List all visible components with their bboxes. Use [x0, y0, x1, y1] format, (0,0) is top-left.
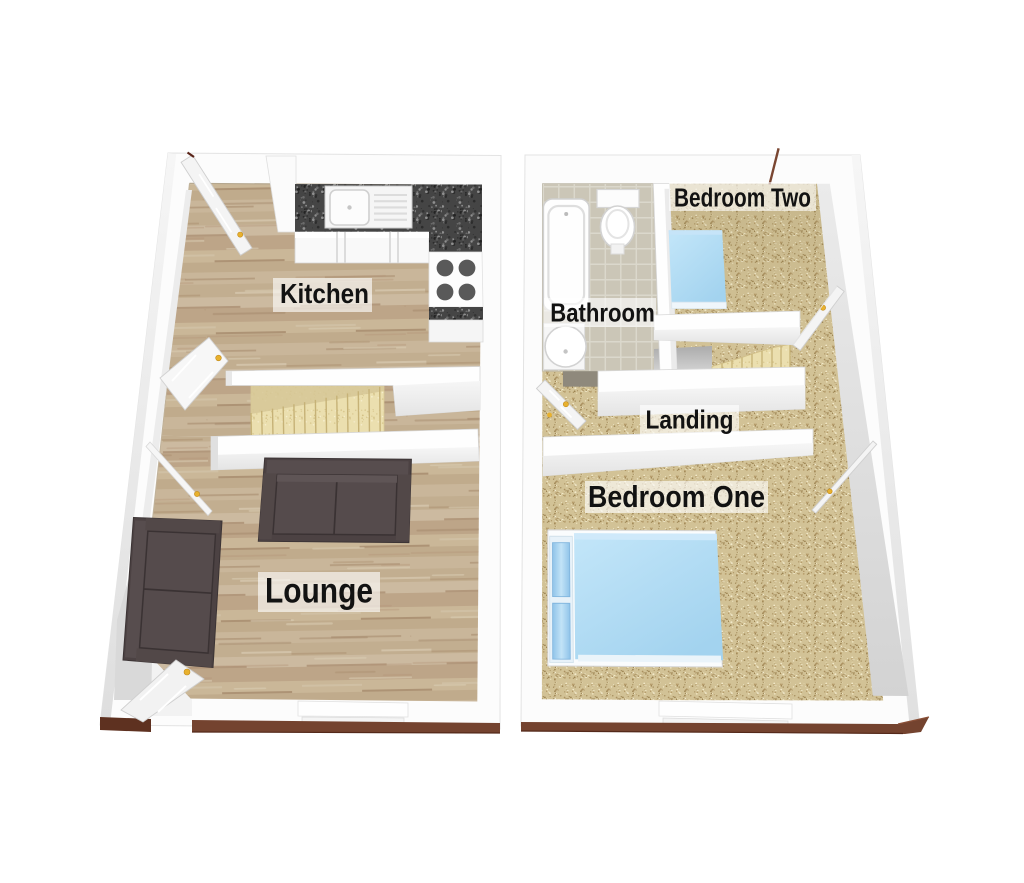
svg-text:Bedroom Two: Bedroom Two — [674, 185, 811, 213]
svg-text:Bathroom: Bathroom — [550, 298, 655, 328]
svg-text:Kitchen: Kitchen — [280, 278, 369, 309]
svg-text:Landing: Landing — [646, 405, 734, 435]
svg-text:Bedroom One: Bedroom One — [588, 480, 765, 514]
svg-text:Lounge: Lounge — [265, 572, 373, 611]
